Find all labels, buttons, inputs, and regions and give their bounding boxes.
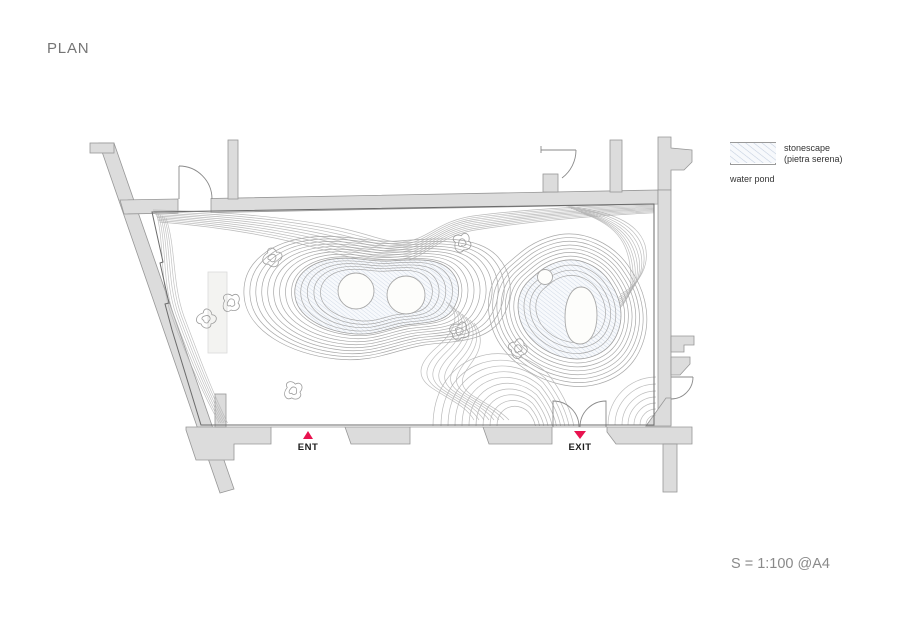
entrance-marker: ENT — [290, 431, 326, 453]
bottom-wall-seg-2 — [345, 427, 410, 444]
legend-label-stonescape: stonescape (pietra serena) — [784, 142, 843, 165]
top-pier-1 — [228, 140, 238, 199]
bottom-wall-seg-4 — [607, 427, 692, 444]
legend: stonescape (pietra serena) water pond — [730, 142, 890, 193]
bench — [208, 272, 227, 353]
top-door-pier — [543, 174, 558, 192]
side-door-swing — [671, 377, 693, 399]
exit-door-right — [580, 401, 606, 427]
page-title: PLAN — [47, 40, 89, 57]
stone-island-1 — [338, 273, 374, 309]
plan-sheet: PLAN stonescape (pietra serena) water po… — [0, 0, 900, 636]
contour-line — [615, 384, 656, 425]
legend-item-water-pond: water pond — [730, 173, 890, 185]
exit-label: EXIT — [568, 442, 591, 453]
contour-line — [159, 212, 654, 260]
stonescape-contours-top — [153, 204, 654, 262]
figure-doodle — [285, 382, 302, 399]
figure-doodle — [261, 246, 283, 268]
stone-island-3 — [538, 270, 553, 285]
right-wall — [658, 190, 671, 425]
left-wall-stub — [90, 143, 114, 153]
bottom-wall-seg-1 — [186, 427, 271, 460]
legend-label-water-pond: water pond — [730, 173, 775, 185]
right-wall-bracket-1 — [671, 336, 694, 352]
water-pond-left-mound — [244, 236, 510, 359]
bottom-right-wall — [663, 444, 677, 492]
upper-door-leaf — [541, 146, 576, 153]
exit-arrow-icon — [574, 431, 586, 439]
stone-island-4 — [565, 287, 597, 344]
right-corner-block — [658, 137, 692, 190]
scale-note: S = 1:100 @A4 — [731, 556, 830, 572]
bottom-wall-seg-3 — [483, 427, 552, 444]
exit-marker: EXIT — [558, 431, 602, 453]
entrance-top-door-swing — [179, 166, 212, 199]
floor-plan-drawing — [0, 0, 900, 636]
entrance-arrow-icon — [303, 431, 313, 439]
right-wall-bracket-2 — [671, 357, 690, 375]
entrance-label: ENT — [298, 442, 319, 453]
water-pond-right-mound — [488, 234, 646, 387]
upper-door-swing — [562, 150, 576, 178]
stonescape-contours-corner — [608, 377, 656, 425]
contour-line — [497, 406, 535, 426]
top-pier-2 — [610, 140, 622, 192]
stone-island-2 — [387, 276, 425, 314]
water-pond-swatch — [730, 143, 776, 163]
figure-doodle — [221, 292, 241, 312]
